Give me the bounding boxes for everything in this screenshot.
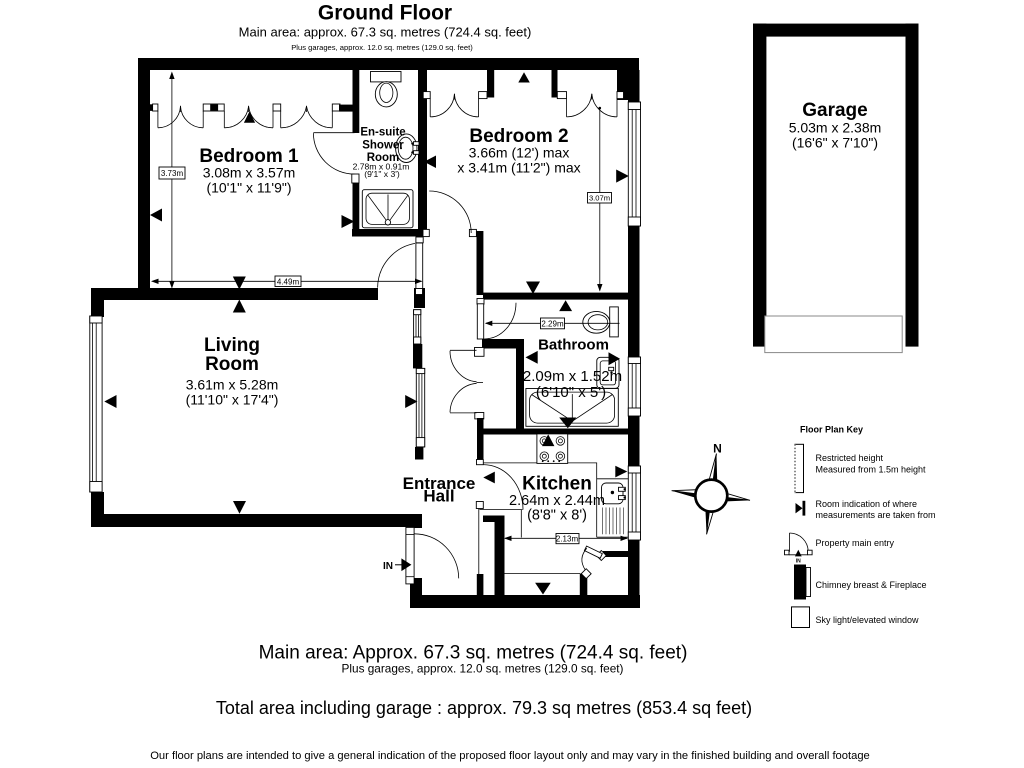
svg-text:Main area: approx. 67.3 sq. me: Main area: approx. 67.3 sq. metres (724.… xyxy=(239,25,532,40)
svg-text:Living: Living xyxy=(204,335,260,356)
svg-text:3.08m x 3.57m: 3.08m x 3.57m xyxy=(203,165,296,181)
svg-text:Ground Floor: Ground Floor xyxy=(318,2,452,25)
svg-text:Plus garages, approx. 12.0 sq.: Plus garages, approx. 12.0 sq. metres (1… xyxy=(291,43,473,52)
svg-text:Shower: Shower xyxy=(362,140,404,152)
svg-text:IN: IN xyxy=(796,559,801,565)
svg-text:Bathroom: Bathroom xyxy=(538,337,609,354)
svg-text:Room indication of where: Room indication of where xyxy=(816,499,918,509)
svg-text:(16'6" x 7'10"): (16'6" x 7'10") xyxy=(792,135,878,151)
svg-text:Measured from 1.5m height: Measured from 1.5m height xyxy=(816,464,927,474)
svg-text:Room: Room xyxy=(205,354,259,375)
svg-text:3.73m: 3.73m xyxy=(161,169,184,178)
svg-text:3.66m (12') max: 3.66m (12') max xyxy=(469,145,570,161)
svg-text:4.49m: 4.49m xyxy=(277,277,300,286)
svg-text:Plus garages, approx. 12.0 sq.: Plus garages, approx. 12.0 sq. metres (1… xyxy=(342,662,624,676)
svg-text:2.09m x 1.52m: 2.09m x 1.52m xyxy=(523,368,622,385)
svg-text:Total area including garage :: Total area including garage : approx. 79… xyxy=(216,698,752,718)
svg-text:(11'10" x 17'4"): (11'10" x 17'4") xyxy=(186,392,279,408)
svg-text:measurements are taken from: measurements are taken from xyxy=(816,510,936,520)
svg-text:Chimney breast & Fireplace: Chimney breast & Fireplace xyxy=(816,580,927,590)
svg-text:x 3.41m (11'2") max: x 3.41m (11'2") max xyxy=(457,160,580,176)
svg-text:Hall: Hall xyxy=(423,487,454,506)
svg-text:N: N xyxy=(713,442,722,456)
svg-text:3.61m x 5.28m: 3.61m x 5.28m xyxy=(186,377,279,393)
svg-text:(9'1" x 3'): (9'1" x 3') xyxy=(364,169,400,179)
svg-text:Floor Plan Key: Floor Plan Key xyxy=(800,425,863,435)
svg-text:Main area: Approx. 67.3 sq. me: Main area: Approx. 67.3 sq. metres (724.… xyxy=(259,643,688,664)
svg-text:3.07m: 3.07m xyxy=(589,194,610,203)
svg-text:(8'8" x 8'): (8'8" x 8') xyxy=(527,508,587,524)
svg-text:2.13m: 2.13m xyxy=(556,535,579,544)
svg-text:Property main entry: Property main entry xyxy=(816,538,895,548)
svg-text:IN: IN xyxy=(383,561,393,572)
svg-text:Sky light/elevated window: Sky light/elevated window xyxy=(816,615,920,625)
svg-text:5.03m x 2.38m: 5.03m x 2.38m xyxy=(789,120,882,136)
svg-text:Kitchen: Kitchen xyxy=(522,474,592,495)
svg-text:Garage: Garage xyxy=(802,100,867,121)
svg-text:2.29m: 2.29m xyxy=(541,320,564,329)
svg-text:Restricted height: Restricted height xyxy=(816,453,884,463)
svg-text:Our floor plans are intended t: Our floor plans are intended to give a g… xyxy=(150,750,870,762)
svg-text:En-suite: En-suite xyxy=(360,127,405,139)
svg-text:(6'10" x 5'): (6'10" x 5') xyxy=(536,384,606,401)
svg-text:(10'1" x 11'9"): (10'1" x 11'9") xyxy=(206,180,291,196)
